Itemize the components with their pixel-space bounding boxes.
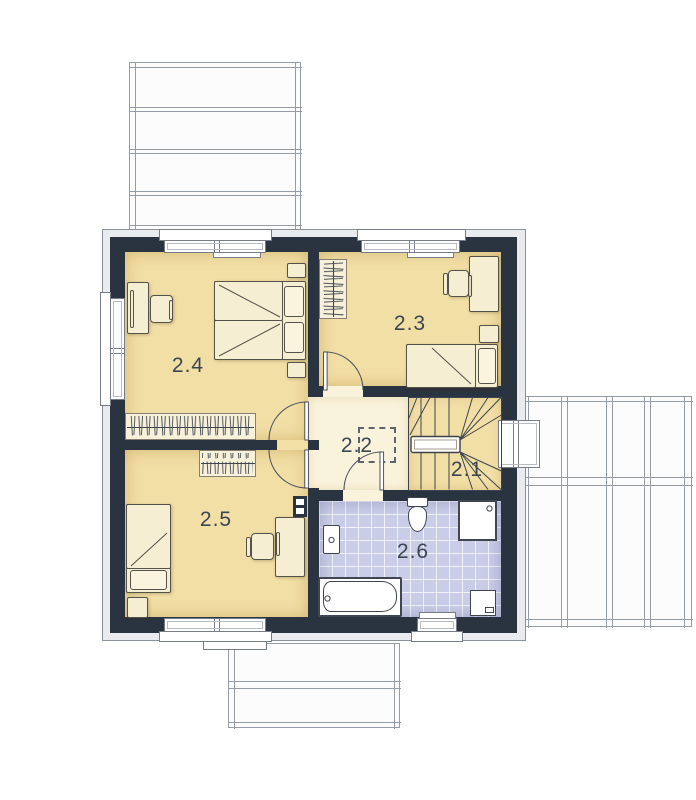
balcony-line — [523, 619, 693, 620]
window-mullion — [214, 619, 220, 631]
nightstand — [287, 263, 306, 278]
window-mullion — [214, 241, 220, 252]
chair-backrest — [169, 300, 173, 320]
terrace-line — [130, 153, 302, 154]
balcony-door-east — [498, 420, 540, 468]
door-nook-floor — [277, 440, 308, 450]
terrace-line — [130, 149, 302, 150]
balcony-line — [612, 397, 613, 628]
nightstand — [479, 325, 499, 343]
balcony-line — [523, 485, 693, 486]
balcony-line — [523, 477, 693, 478]
window-sill — [203, 641, 267, 650]
balcony-line — [229, 681, 401, 682]
washer-drawer — [485, 607, 494, 613]
terrace-line — [130, 195, 302, 196]
top-terrace — [129, 62, 301, 233]
chair-backrest — [246, 537, 251, 557]
room-label-2-4: 2.4 — [172, 354, 204, 378]
window-inner-sill — [213, 252, 261, 258]
monitor — [276, 532, 280, 556]
window-south-2 — [417, 618, 457, 632]
room-label-2-6: 2.6 — [397, 540, 429, 564]
balcony-line — [229, 688, 401, 689]
terrace-line — [130, 191, 302, 192]
nightstand — [127, 597, 148, 618]
balcony-line — [523, 401, 693, 402]
window-west — [110, 298, 125, 400]
pillow — [478, 348, 496, 384]
office-chair — [251, 533, 274, 560]
pillow — [284, 286, 304, 317]
window-mullion — [111, 348, 124, 354]
balcony-line — [650, 397, 651, 628]
terrace-line — [130, 67, 302, 68]
room-label-2-1: 2.1 — [451, 458, 483, 482]
office-chair — [448, 270, 469, 297]
shelf-cell — [296, 508, 304, 514]
partition-wall — [308, 440, 319, 450]
partition-wall — [125, 440, 277, 450]
window-sill — [411, 631, 463, 642]
door-threshold — [323, 386, 363, 397]
window-south-1 — [164, 618, 266, 632]
wall-shelf — [293, 496, 307, 517]
mattress — [406, 344, 476, 388]
nightstand — [287, 362, 306, 378]
balcony-line — [684, 397, 685, 628]
window-inner-sill — [407, 252, 454, 258]
room-label-2-3: 2.3 — [394, 312, 426, 336]
right-balcony — [522, 396, 692, 627]
monitor — [130, 290, 134, 328]
door-threshold — [343, 490, 383, 501]
room-label-2-5: 2.5 — [200, 508, 232, 532]
mattress — [214, 281, 283, 321]
desk — [469, 256, 499, 312]
shelf-cell — [296, 499, 304, 505]
balcony-line — [644, 397, 645, 628]
balcony-line — [394, 644, 395, 729]
terrace-line — [130, 225, 302, 226]
bottom-balcony — [228, 643, 400, 728]
pillow — [130, 570, 167, 590]
sink — [323, 525, 340, 554]
balcony-line — [234, 644, 235, 729]
window-mullion — [409, 241, 415, 252]
terrace-line — [130, 107, 302, 108]
balcony-line — [229, 722, 401, 723]
chair-backrest — [443, 273, 448, 295]
floor-plan-canvas: 2.1 2.2 2.3 2.4 2.5 2.6 — [0, 0, 696, 800]
mattress — [126, 504, 171, 569]
mattress — [214, 320, 283, 360]
balcony-line — [567, 397, 568, 628]
room-label-2-2: 2.2 — [341, 434, 373, 458]
shower — [458, 500, 497, 541]
partition-wall — [308, 252, 319, 397]
pillow — [284, 322, 304, 353]
balcony-line — [561, 397, 562, 628]
bathtub-basin — [323, 581, 397, 612]
terrace-line — [130, 111, 302, 112]
window-mullion — [513, 421, 519, 467]
balcony-line — [606, 397, 607, 628]
